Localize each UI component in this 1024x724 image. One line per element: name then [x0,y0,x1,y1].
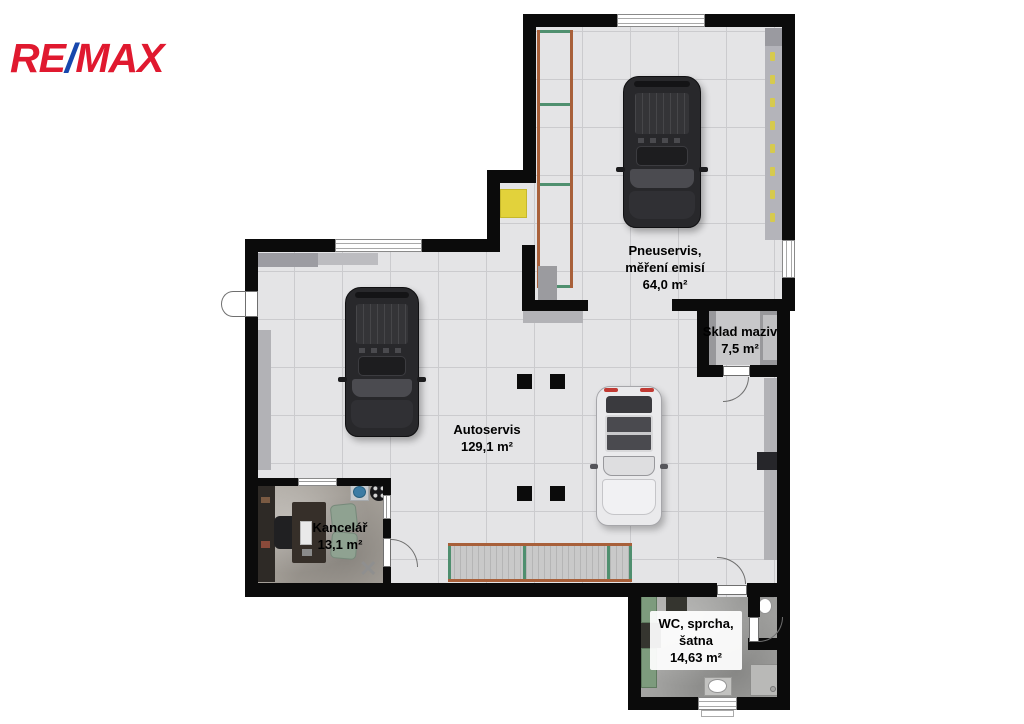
car-taillight-right [640,388,655,392]
wall [245,583,640,597]
wall [777,597,790,710]
wall [245,317,258,583]
car-windshield [603,456,655,476]
car-rear-window [606,396,652,413]
room-label-kancelar: Kancelář 13,1 m² [295,519,385,553]
room-name: Sklad maziv [695,323,785,340]
car-windshield [630,169,694,187]
door-leaf [749,617,759,642]
car-mirror-left [616,167,625,172]
wc-sink-basin [708,679,727,693]
wall [697,365,723,377]
door-leaf [245,291,258,317]
door-leaf [717,585,747,595]
electrical-box [757,452,779,470]
parts-rack [448,543,632,582]
garage-door [617,14,705,27]
lift-post [517,374,532,389]
workbench [765,28,782,240]
car-sunroof [358,356,407,376]
wall [522,245,535,300]
car-rear-window [634,81,690,88]
workbench [257,330,271,470]
workbench [318,253,378,265]
room-area: 64,0 m² [585,276,745,293]
workbench [538,266,557,300]
car-roof-vents [359,348,405,353]
car-roof [605,415,653,451]
car-taillight-left [604,388,619,392]
car-hood [351,400,413,428]
room-area: 13,1 m² [295,536,385,553]
car-mirror-right [660,464,668,469]
exterior-area [487,14,523,170]
exterior-area [790,311,795,710]
wall [383,486,391,495]
car-mirror-left [338,377,347,382]
room-area: 7,5 m² [695,340,785,357]
wall [750,365,777,377]
logo-slash-icon: / [65,35,75,81]
door-leaf [723,366,750,376]
window [298,478,337,486]
wall [748,583,760,617]
car-mirror-left [590,464,598,469]
floor-plan: RE/MAX [0,0,1024,724]
car-roof [635,93,690,134]
wall [523,27,536,183]
wall [253,478,298,486]
car-white [596,386,662,526]
wall [782,27,795,240]
room-name: Kancelář [295,519,385,536]
wall [383,567,391,595]
car-suv-dark [345,287,419,437]
room-name: WC, sprcha, [652,615,740,632]
wall [522,300,588,311]
toilet-bowl [758,598,772,614]
changing-bench [666,597,687,611]
wall [705,14,795,27]
sink-basin [353,486,366,498]
door-step [701,710,734,717]
lift-post [550,486,565,501]
remax-logo: RE/MAX [10,34,163,82]
car-roof-vents [638,138,686,143]
car-mirror-right [417,377,426,382]
wall [337,478,391,486]
room-area: 14,63 m² [652,649,740,666]
logo-re: RE [10,35,65,81]
exterior-area [245,14,487,239]
cabinet-item [261,497,270,503]
floor-x-mark: ✕ [359,558,377,580]
room-name: šatna [652,632,740,649]
car-sunroof [636,146,688,166]
door-swing-arc [221,291,245,317]
workbench [257,253,318,267]
lift-post [517,486,532,501]
room-label-wc: WC, sprcha, šatna 14,63 m² [650,611,742,670]
car-windshield [352,379,413,397]
exterior-door [698,697,737,710]
tire-rack [537,30,573,288]
room-name: Autoservis [417,421,557,438]
room-label-autoservis: Autoservis 129,1 m² [417,421,557,455]
room-name: měření emisí [585,259,745,276]
car-mirror-right [699,167,708,172]
wall [422,239,500,252]
car-hood [629,191,695,219]
wall [628,597,641,710]
room-name: Pneuservis, [585,242,745,259]
window [782,240,795,278]
wall [672,299,790,311]
car-hood [602,479,656,515]
wall [523,14,617,27]
yellow-equipment [500,189,527,218]
car-suv-dark [623,76,701,228]
logo-max: MAX [75,35,163,81]
lift-post [550,374,565,389]
car-rear-window [355,292,408,299]
workbench [523,311,583,323]
car-roof [356,304,408,345]
cabinet-item [261,541,270,548]
wall [245,252,258,291]
room-label-sklad: Sklad maziv 7,5 m² [695,323,785,357]
room-label-pneuservis: Pneuservis, měření emisí 64,0 m² [585,242,745,293]
wall [628,697,698,710]
window [335,239,422,252]
room-area: 129,1 m² [417,438,557,455]
exterior-area [245,597,628,710]
wall [628,583,717,597]
window [383,495,391,519]
wall [245,239,335,252]
